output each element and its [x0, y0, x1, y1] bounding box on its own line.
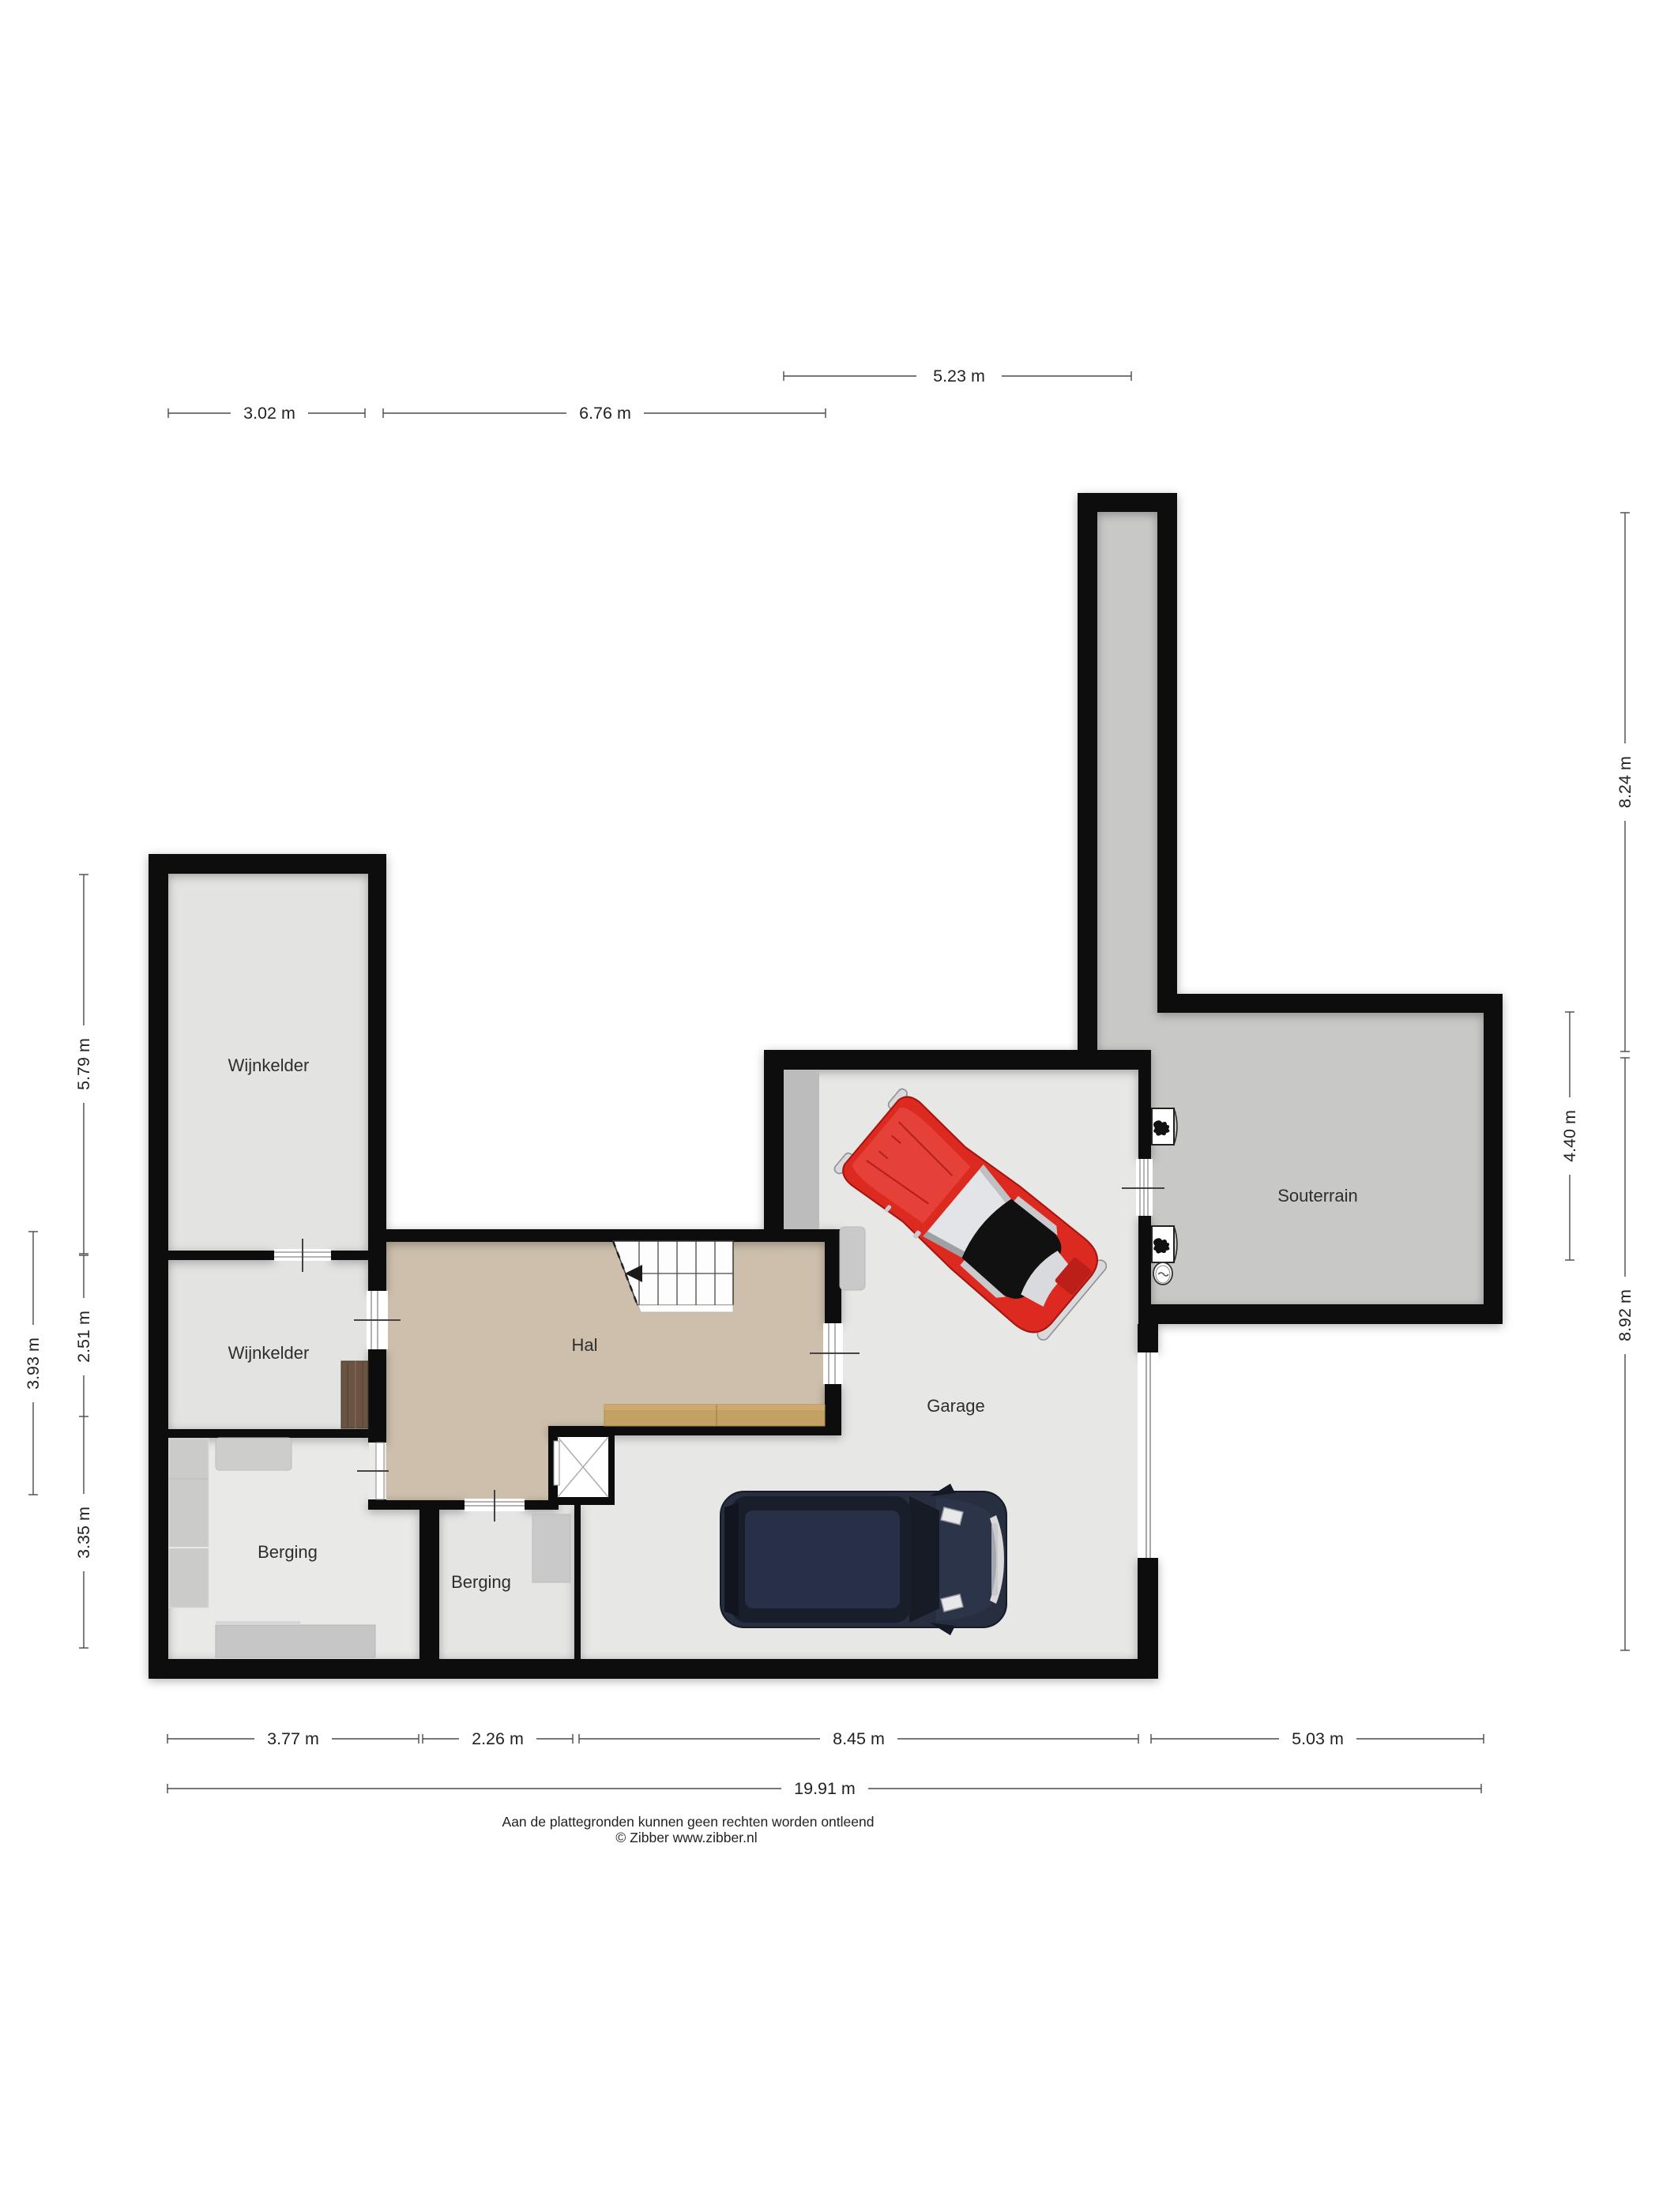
svg-text:3.93 m: 3.93 m: [24, 1337, 43, 1390]
svg-text:4.40 m: 4.40 m: [1560, 1110, 1579, 1162]
svg-text:Wijnkelder: Wijnkelder: [228, 1343, 310, 1363]
svg-text:5.23 m: 5.23 m: [933, 367, 985, 386]
svg-text:Souterrain: Souterrain: [1277, 1186, 1358, 1206]
svg-text:5.03 m: 5.03 m: [1292, 1729, 1344, 1748]
svg-text:19.91 m: 19.91 m: [794, 1779, 856, 1798]
svg-text:8.92 m: 8.92 m: [1616, 1289, 1635, 1341]
svg-text:6.76 m: 6.76 m: [579, 404, 631, 423]
svg-text:8.45 m: 8.45 m: [833, 1729, 885, 1748]
svg-text:3.02 m: 3.02 m: [243, 404, 295, 423]
svg-text:Wijnkelder: Wijnkelder: [228, 1055, 310, 1075]
svg-text:8.24 m: 8.24 m: [1616, 756, 1635, 808]
svg-text:2.26 m: 2.26 m: [472, 1729, 524, 1748]
svg-text:Garage: Garage: [927, 1396, 984, 1416]
svg-text:Hal: Hal: [571, 1335, 597, 1355]
svg-text:Berging: Berging: [451, 1572, 511, 1592]
svg-text:3.77 m: 3.77 m: [267, 1729, 319, 1748]
svg-text:5.79 m: 5.79 m: [74, 1038, 93, 1090]
svg-text:3.35 m: 3.35 m: [74, 1507, 93, 1559]
svg-text:© Zibber www.zibber.nl: © Zibber www.zibber.nl: [615, 1830, 757, 1845]
svg-text:2.51 m: 2.51 m: [74, 1311, 93, 1363]
svg-text:Aan de plattegronden kunnen ge: Aan de plattegronden kunnen geen rechten…: [502, 1814, 875, 1830]
svg-text:Berging: Berging: [258, 1542, 318, 1562]
